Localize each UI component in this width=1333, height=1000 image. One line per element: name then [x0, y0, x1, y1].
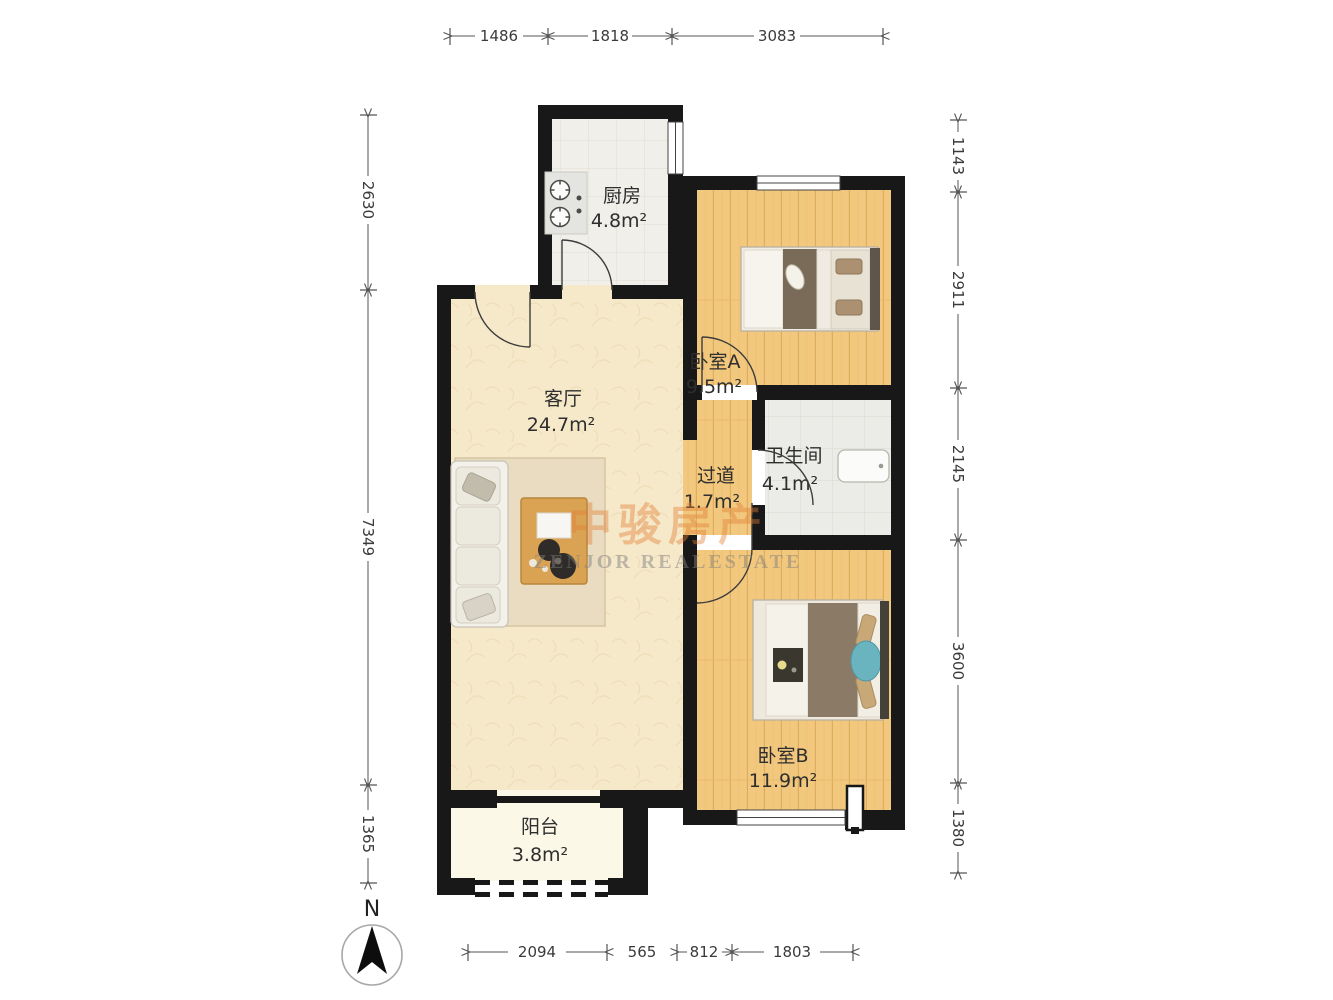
svg-text:812: 812: [690, 943, 719, 961]
svg-text:3.8m²: 3.8m²: [512, 844, 568, 866]
window-kitchen: [668, 122, 683, 174]
watermark-en: ZENJOR REALESTATE: [534, 551, 803, 573]
dimension-left: 2630 7349 1365: [359, 115, 377, 883]
svg-text:1380: 1380: [949, 809, 967, 847]
floorplan-drawing: 厨房 4.8m² 卧室A 9.5m² 客厅 24.7m² 过道 1.7m² 卫生…: [0, 0, 1333, 1000]
svg-text:3600: 3600: [949, 642, 967, 680]
floorplan-page: 厨房 4.8m² 卧室A 9.5m² 客厅 24.7m² 过道 1.7m² 卫生…: [0, 0, 1333, 1000]
svg-text:1818: 1818: [591, 27, 629, 45]
north-arrow-icon: N: [342, 897, 402, 985]
north-label: N: [364, 897, 380, 922]
svg-text:过道: 过道: [697, 465, 735, 487]
dimension-right: 1143 2911 2145 3600 1380: [949, 120, 967, 873]
svg-text:卧室B: 卧室B: [757, 745, 808, 767]
bed-bedroom-a: [741, 247, 880, 331]
svg-text:1365: 1365: [359, 815, 377, 853]
window-bedroom-a: [757, 176, 840, 190]
svg-text:7349: 7349: [359, 518, 377, 556]
sofa: [451, 461, 508, 627]
svg-text:2911: 2911: [949, 271, 967, 309]
svg-text:1803: 1803: [773, 943, 811, 961]
svg-text:11.9m²: 11.9m²: [749, 770, 817, 792]
svg-text:2630: 2630: [359, 181, 377, 219]
svg-text:9.5m²: 9.5m²: [686, 376, 742, 398]
dimension-bottom: 2094 565 812 1803: [468, 943, 853, 961]
svg-text:4.8m²: 4.8m²: [591, 210, 647, 232]
svg-text:厨房: 厨房: [603, 185, 641, 207]
balcony-rail: [475, 883, 608, 895]
svg-text:3083: 3083: [758, 27, 796, 45]
bed-bedroom-b: [753, 600, 889, 720]
dimension-top: 1486 1818 3083: [450, 27, 883, 45]
svg-text:阳台: 阳台: [521, 816, 559, 838]
svg-text:1143: 1143: [949, 137, 967, 175]
bathtub: [838, 450, 889, 482]
svg-text:565: 565: [628, 943, 657, 961]
svg-text:24.7m²: 24.7m²: [527, 414, 595, 436]
svg-text:2094: 2094: [518, 943, 556, 961]
window-bedroom-b: [737, 810, 845, 825]
svg-text:客厅: 客厅: [544, 388, 582, 410]
kitchen-stove: [545, 172, 587, 234]
door-frame-bedroom-b: [847, 786, 863, 834]
svg-text:1486: 1486: [480, 27, 518, 45]
watermark-cn: 中骏房产: [568, 500, 768, 551]
watermark: 中骏房产 ZENJOR REALESTATE: [534, 500, 803, 573]
svg-text:2145: 2145: [949, 445, 967, 483]
svg-text:卧室A: 卧室A: [690, 351, 741, 373]
